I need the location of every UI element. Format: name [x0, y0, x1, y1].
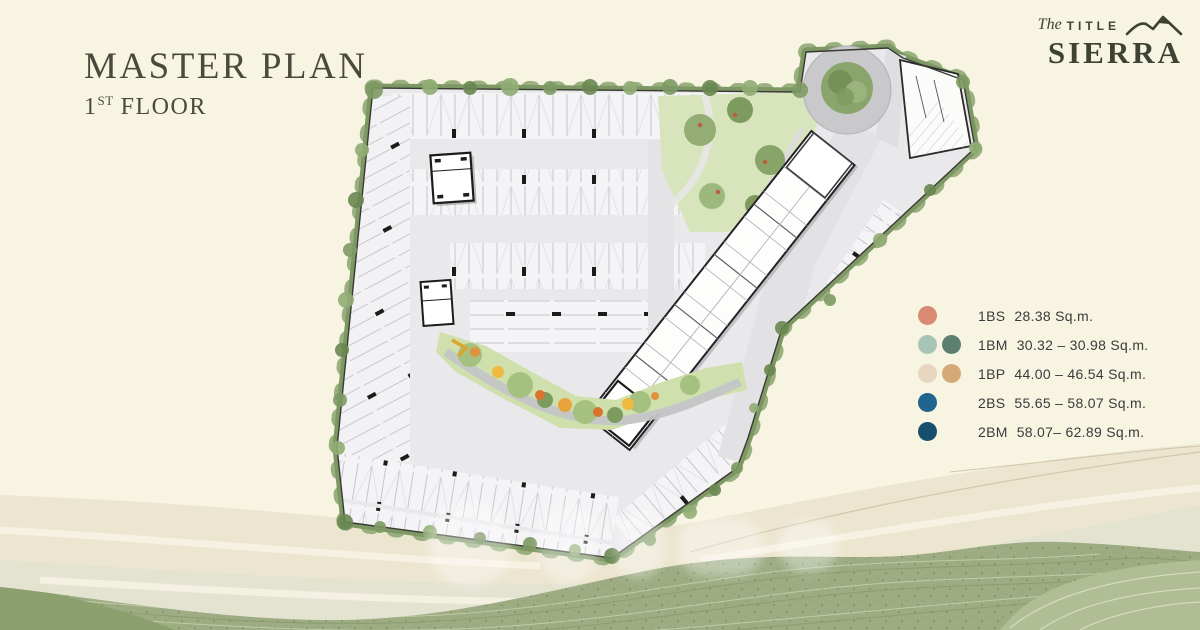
legend-row-1bs: 1BS28.38 Sq.m. — [918, 306, 1148, 325]
page-title: MASTER PLAN — [84, 48, 367, 85]
unit-color-swatch — [942, 335, 961, 354]
brand-logo: The TITLE SIERRA — [1038, 14, 1183, 68]
unit-legend: 1BS28.38 Sq.m. 1BM30.32 – 30.98 Sq.m. 1B… — [918, 306, 1148, 451]
unit-color-swatch — [918, 364, 937, 383]
unit-area: 28.38 Sq.m. — [1014, 308, 1093, 324]
page-subtitle: 1STFLOOR — [84, 94, 367, 119]
unit-color-swatch — [918, 393, 937, 412]
unit-code: 2BM — [978, 424, 1008, 440]
unit-color-swatch — [918, 335, 937, 354]
legend-row-1bm: 1BM30.32 – 30.98 Sq.m. — [918, 335, 1148, 354]
floor-word: FLOOR — [121, 94, 207, 120]
unit-area: 58.07– 62.89 Sq.m. — [1017, 424, 1145, 440]
unit-area: 30.32 – 30.98 Sq.m. — [1017, 337, 1149, 353]
unit-code: 1BP — [978, 366, 1005, 382]
floor-ordinal: ST — [98, 93, 114, 108]
unit-code: 2BS — [978, 395, 1005, 411]
stair-core-north — [430, 152, 476, 206]
unit-area: 55.65 – 58.07 Sq.m. — [1014, 395, 1146, 411]
legend-row-2bs: 2BS55.65 – 58.07 Sq.m. — [918, 393, 1148, 412]
title-block: MASTER PLAN 1STFLOOR — [84, 48, 367, 119]
legend-row-1bp: 1BP44.00 – 46.54 Sq.m. — [918, 364, 1148, 383]
mountain-icon — [1125, 14, 1183, 36]
unit-color-swatch — [918, 306, 937, 325]
legend-row-2bm: 2BM58.07– 62.89 Sq.m. — [918, 422, 1148, 441]
unit-color-swatch — [918, 422, 937, 441]
logo-brand-word: TITLE — [1067, 18, 1120, 32]
unit-code: 1BS — [978, 308, 1005, 324]
floor-number: 1 — [84, 94, 98, 120]
unit-color-swatch — [942, 364, 961, 383]
unit-code: 1BM — [978, 337, 1008, 353]
stair-core-west — [420, 280, 453, 326]
logo-script-word: The — [1038, 17, 1062, 33]
roundabout — [803, 46, 891, 134]
project-name: SIERRA — [1038, 37, 1183, 68]
unit-area: 44.00 – 46.54 Sq.m. — [1014, 366, 1146, 382]
master-plan-page: MASTER PLAN 1STFLOOR The TITLE SIERRA 1B… — [0, 0, 1200, 630]
